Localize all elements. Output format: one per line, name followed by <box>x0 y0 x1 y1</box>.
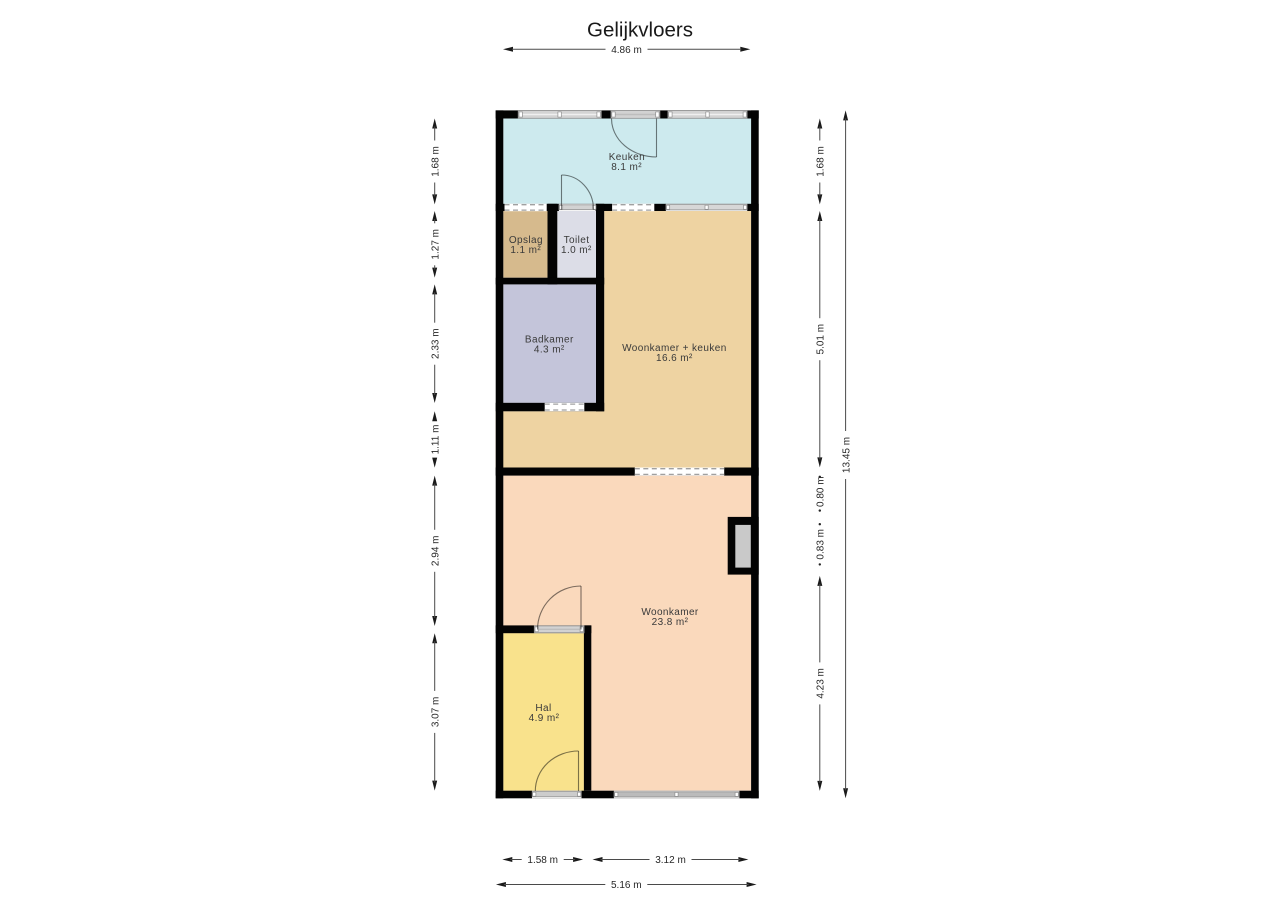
svg-text:1.58 m: 1.58 m <box>527 855 558 866</box>
svg-text:2.33 m: 2.33 m <box>430 328 441 359</box>
svg-text:Gelijkvloers: Gelijkvloers <box>587 19 693 42</box>
svg-text:0.80 m: 0.80 m <box>816 476 827 507</box>
svg-text:1.11 m: 1.11 m <box>430 425 441 455</box>
svg-text:13.45 m: 13.45 m <box>841 437 852 473</box>
svg-text:1.0 m²: 1.0 m² <box>561 245 592 256</box>
svg-text:4.3 m²: 4.3 m² <box>534 345 565 356</box>
svg-text:16.6 m²: 16.6 m² <box>656 353 693 364</box>
svg-text:1.68 m: 1.68 m <box>816 146 827 177</box>
svg-text:4.86 m: 4.86 m <box>611 45 642 56</box>
svg-text:4.23 m: 4.23 m <box>816 668 827 699</box>
svg-text:2.94 m: 2.94 m <box>430 536 441 567</box>
svg-text:4.9 m²: 4.9 m² <box>529 713 560 724</box>
svg-text:8.1 m²: 8.1 m² <box>611 162 642 173</box>
svg-text:5.16 m: 5.16 m <box>611 880 642 891</box>
svg-text:1.1 m²: 1.1 m² <box>510 245 541 256</box>
svg-text:0.83 m: 0.83 m <box>816 529 827 560</box>
svg-text:1.68 m: 1.68 m <box>430 146 441 177</box>
svg-text:3.07 m: 3.07 m <box>430 697 441 728</box>
svg-text:5.01 m: 5.01 m <box>816 324 827 355</box>
svg-text:1.27 m: 1.27 m <box>430 229 441 260</box>
svg-text:23.8 m²: 23.8 m² <box>652 617 689 628</box>
svg-text:3.12 m: 3.12 m <box>655 855 686 866</box>
